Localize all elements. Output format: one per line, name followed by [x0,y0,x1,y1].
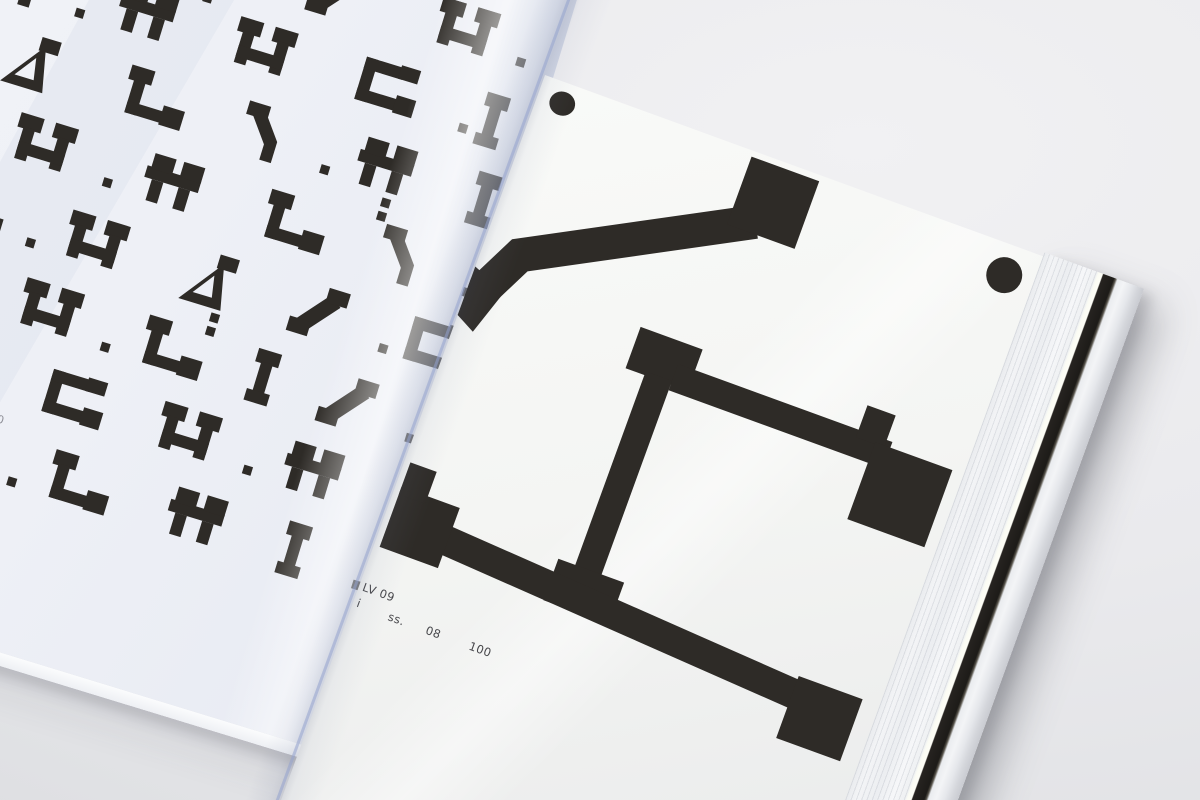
caption-token-08: 08 [424,623,443,641]
book-photo-scene: 0 [0,0,1200,800]
stem [570,371,672,587]
crossbar [673,377,887,455]
registration-dot-top-right [981,252,1027,298]
caption-token-100: 100 [467,639,494,660]
